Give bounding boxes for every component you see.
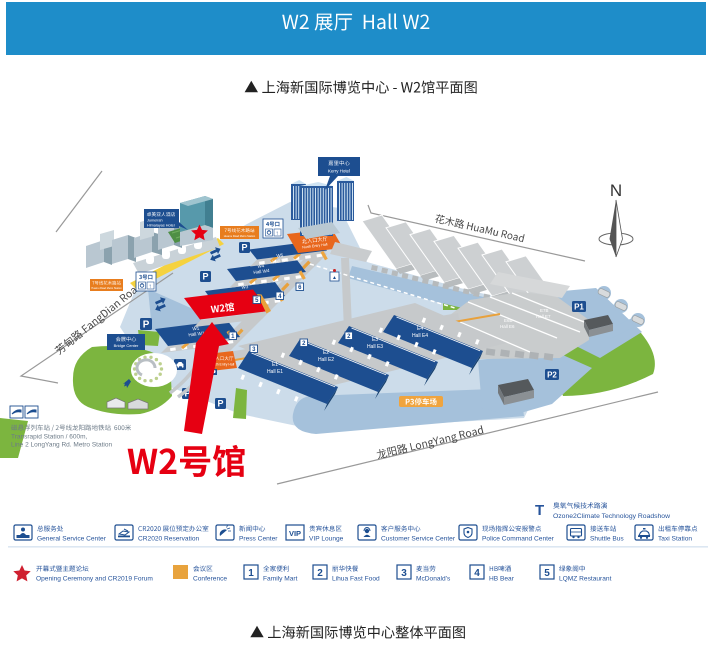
svg-text:Huamu Road Metro Station: Huamu Road Metro Station <box>224 234 256 238</box>
svg-text:P: P <box>202 272 208 282</box>
svg-text:2: 2 <box>317 568 323 579</box>
svg-text:E2: E2 <box>323 350 329 356</box>
svg-text:Lihua Fast Food: Lihua Fast Food <box>332 576 380 583</box>
svg-text:HB Bear: HB Bear <box>489 576 515 583</box>
svg-text:E1: E1 <box>272 362 278 368</box>
svg-text:Shuttle Bus: Shuttle Bus <box>590 536 624 543</box>
svg-text:E7B: E7B <box>540 308 549 313</box>
svg-text:Jumeirah: Jumeirah <box>147 219 163 223</box>
svg-text:5: 5 <box>544 568 550 579</box>
svg-text:Police Command Center: Police Command Center <box>482 536 555 543</box>
svg-text:VIP: VIP <box>289 529 301 538</box>
svg-text:Press Center: Press Center <box>239 536 278 543</box>
svg-text:Conference: Conference <box>193 576 227 583</box>
svg-text:CR2020 Reservation: CR2020 Reservation <box>138 536 200 543</box>
svg-text:Hall E4: Hall E4 <box>412 333 428 339</box>
svg-text:VIP Lounge: VIP Lounge <box>309 536 344 543</box>
svg-text:General Service Center: General Service Center <box>37 536 107 543</box>
svg-text:P: P <box>217 399 223 409</box>
svg-text:Ozone2Climate Technology Roads: Ozone2Climate Technology Roadshow <box>553 513 670 520</box>
svg-text:E4: E4 <box>417 326 423 332</box>
svg-text:P2: P2 <box>547 371 557 380</box>
svg-text:Hall E6: Hall E6 <box>500 324 515 329</box>
svg-text:N: N <box>610 181 622 200</box>
svg-text:4: 4 <box>474 568 480 579</box>
svg-text:↑: ↑ <box>276 231 279 237</box>
svg-text:Hall E1: Hall E1 <box>267 369 283 375</box>
svg-text:P: P <box>241 243 247 253</box>
svg-text:Hall E3: Hall E3 <box>367 344 383 350</box>
svg-text:McDonald's: McDonald's <box>416 576 451 583</box>
svg-text:↑: ↑ <box>149 284 152 290</box>
svg-text:3: 3 <box>401 568 407 579</box>
svg-text:1: 1 <box>248 568 254 579</box>
svg-text:Customer Service Center: Customer Service Center <box>381 536 456 543</box>
svg-text:E6B: E6B <box>504 318 513 323</box>
svg-text:Transrapid Station / 600m,: Transrapid Station / 600m, <box>11 434 88 441</box>
svg-text:Bridge Center: Bridge Center <box>114 343 139 348</box>
svg-text:LQMZ Restaurant: LQMZ Restaurant <box>559 576 612 583</box>
svg-text:▲: ▲ <box>332 275 337 281</box>
svg-text:Hall E7: Hall E7 <box>536 314 551 319</box>
svg-text:Family Mart: Family Mart <box>263 576 298 583</box>
svg-text:Kerry Hotel: Kerry Hotel <box>328 169 350 174</box>
svg-text:Huamu Road Metro Station: Huamu Road Metro Station <box>91 287 122 290</box>
svg-text:Himalayas Hotel: Himalayas Hotel <box>147 224 175 228</box>
svg-text:Opening Ceremony and CR2019 Fo: Opening Ceremony and CR2019 Forum <box>36 576 153 583</box>
svg-text:Taxi Station: Taxi Station <box>658 536 692 543</box>
svg-text:Hall E2: Hall E2 <box>318 357 334 363</box>
svg-text:P: P <box>143 319 150 330</box>
svg-text:Line 2 LongYang Rd. Metro Stat: Line 2 LongYang Rd. Metro Station <box>11 442 112 449</box>
svg-text:T: T <box>535 502 544 519</box>
svg-text:E3: E3 <box>372 337 378 343</box>
svg-text:P1: P1 <box>574 303 584 312</box>
